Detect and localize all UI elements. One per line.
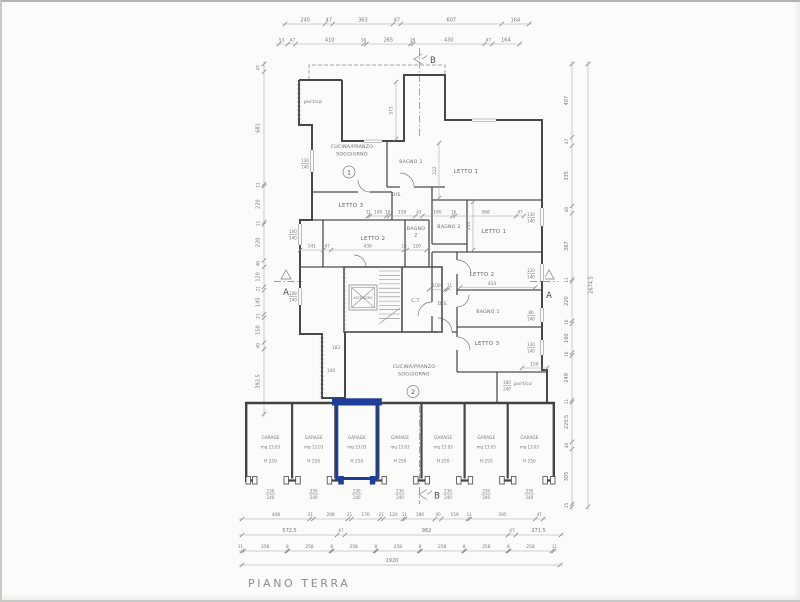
dim-label: 271.5 <box>531 528 545 534</box>
room-label-letto3-apt1: LETTO 3 <box>339 203 364 209</box>
dim-label: 40 <box>564 443 570 449</box>
dim-label: 11 <box>256 182 262 188</box>
window-dim: 130140 <box>301 158 309 170</box>
dim-label: 240 <box>267 495 275 500</box>
garage-height-label: H 250 <box>523 459 536 465</box>
dim-label: 40 <box>256 261 262 267</box>
dim-label: 130 <box>301 158 309 163</box>
dim-label: 180 <box>416 512 424 518</box>
dim-label: 8 <box>419 544 422 549</box>
garage-bay: GARAGEmq 13.03H 250 <box>304 435 324 465</box>
dim-label: 21 <box>256 313 262 319</box>
roof-overhang-dashed-line <box>309 65 445 80</box>
garage-bay: GARAGEmq 13.03H 250 <box>390 435 410 465</box>
dim-label: 140 <box>301 165 309 170</box>
room-label-letto2-apt2: LETTO 2 <box>470 272 495 278</box>
dim-label: 240 <box>396 495 404 500</box>
dim-label: 21 <box>379 512 385 517</box>
dim-label: 258 <box>394 544 402 550</box>
garage-label: GARAGE <box>262 435 280 441</box>
dim-label: 258 <box>261 544 269 550</box>
dim-column-right: 407 47 335 40 367 11 220 16 160 16 249 1… <box>564 61 574 510</box>
dim-label: 47 <box>290 38 296 44</box>
hatched-wall <box>320 334 325 398</box>
dim-label: 47 <box>486 38 492 44</box>
dim-label: 392.5 <box>256 374 262 388</box>
room-labels: portico CUCINA/PRANZO SOGGIORNO BAGNO 1 … <box>304 99 532 387</box>
garage-label: GARAGE <box>520 435 538 441</box>
room-label-letto3-apt2: LETTO 3 <box>475 341 500 347</box>
dim-label: 164 <box>501 38 511 44</box>
room-label-cucina-1b: SOGGIORNO <box>336 152 368 158</box>
garage-bay: GARAGEmq 13.03H 250 <box>477 435 497 465</box>
dim-row-top-1: 240 47 363 47 607 164 <box>282 18 532 27</box>
apartment-number-label: 1 <box>347 169 351 176</box>
section-label-b: B <box>430 56 436 66</box>
dim-label: 21 <box>308 512 314 517</box>
section-marker-b-top: B <box>414 48 436 137</box>
dim-label: 220.5 <box>564 415 570 429</box>
garage-door-dim: 230240 <box>481 489 491 501</box>
section-label-a: A <box>283 288 289 298</box>
dim-row-bottom-3: 11 258 8 258 8 258 8 258 8 258 8 258 8 2… <box>238 544 558 553</box>
garage-door-dim: 230240 <box>443 489 453 501</box>
garage-bay: GARAGEmq 13.03H 250 <box>434 435 454 465</box>
dim-label: 40 <box>564 207 570 213</box>
dim-label: 141 <box>308 243 316 249</box>
dim-label: 430 <box>444 38 454 44</box>
elevator-icon: ASCENSORE <box>349 285 377 310</box>
garage-door-dim: 230240 <box>266 489 276 501</box>
interior-walls <box>300 141 547 402</box>
apartment-number-2: 2 <box>407 386 419 398</box>
garage-height-label: H 250 <box>307 459 320 465</box>
dim-row-bottom-total: 1920 <box>239 558 563 567</box>
dim-label: 130 <box>527 342 535 347</box>
dim-label: 47 <box>517 209 523 214</box>
garage-area-label: mq 13.03 <box>477 445 497 450</box>
dim-label: 47 <box>326 18 332 24</box>
dim-label: 439 <box>364 243 372 249</box>
dim-label-total-height: 2674.5 <box>589 276 595 294</box>
room-label-portico-top: portico <box>304 99 322 105</box>
dim-label: 8 <box>507 544 510 549</box>
dim-label: 240 <box>503 387 511 392</box>
dim-label: 222 <box>432 166 438 174</box>
garage-label: GARAGE <box>434 435 452 441</box>
dim-label: 11 <box>256 221 262 227</box>
drawing-title: PIANO TERRA <box>248 577 350 590</box>
room-label-letto1-apt1: LETTO 1 <box>454 169 479 175</box>
garage-height-label: H 250 <box>437 459 450 465</box>
dim-label: 8 <box>286 544 289 549</box>
garage-door-dim: 230240 <box>352 489 362 501</box>
room-label-cucina-2a: CUCINA/PRANZO <box>393 364 435 370</box>
dim-label: 8 <box>463 544 466 549</box>
dim-label: 11 <box>447 283 453 288</box>
dim-label: 16 <box>564 351 570 357</box>
garage-area-label: mq 13.03 <box>434 445 454 450</box>
window-dim: 108140 <box>289 291 297 303</box>
highlighted-garage <box>332 398 382 484</box>
garage-area-label: mq 13.03 <box>304 445 324 450</box>
dim-label: 230 <box>396 489 404 494</box>
room-label-bagno2-right: BAGNO 2 <box>437 224 460 230</box>
room-label-cucina-2b: SOGGIORNO <box>398 372 430 378</box>
dim-label: 120 <box>413 243 421 249</box>
section-label-b: B <box>434 492 440 502</box>
dim-label: 230 <box>353 489 361 494</box>
room-label-bagno2-center-b: 2 <box>414 233 417 239</box>
dim-label: 47 <box>537 512 543 517</box>
dim-label: 140 <box>289 298 297 303</box>
dim-row-top-2: 53 47 410 16 265 16 430 47 164 <box>276 38 522 47</box>
dim-label: 240 <box>310 495 318 500</box>
garage-area-label: mq 13.03 <box>261 445 281 450</box>
window-dim: 180240 <box>503 380 511 392</box>
dim-label: 335 <box>564 171 570 181</box>
garage-label: GARAGE <box>391 435 409 441</box>
room-label-dis-apt2: DIS. <box>438 301 448 307</box>
dim-label: 47 <box>394 18 400 24</box>
dim-label: 140 <box>527 349 535 354</box>
garage-height-label: H 250 <box>350 459 363 465</box>
elevator-label: ASCENSORE <box>353 296 372 300</box>
dim-label: 11 <box>552 544 558 549</box>
scanned-sheet: 240 47 363 47 607 164 53 47 410 16 265 1… <box>0 0 800 600</box>
garage-row: GARAGEmq 13.03H 250 GARAGEmq 13.03H 250 … <box>245 398 555 500</box>
dim-label: 240 <box>353 495 361 500</box>
dim-label: 16 <box>410 38 416 44</box>
dim-label: 21 <box>347 512 353 517</box>
apartment-number-1: 1 <box>343 166 355 178</box>
dim-column-right-total: 2674.5 <box>586 61 595 510</box>
dim-label: 130 <box>527 212 535 217</box>
apartment-number-label: 2 <box>411 389 415 396</box>
room-label-dis-apt1: DIS. <box>392 192 402 198</box>
dim-label: 120 <box>389 512 397 518</box>
dim-label: 395 <box>498 512 506 518</box>
window-dim: 130140 <box>527 212 535 224</box>
window-dim: 130140 <box>527 342 535 354</box>
dim-label: 164 <box>511 18 521 24</box>
dim-label: 47 <box>256 65 262 71</box>
dim-label: 16 <box>385 209 391 214</box>
dim-label: 249 <box>564 373 570 383</box>
dim-label: 160 <box>564 333 570 343</box>
garage-label: GARAGE <box>348 435 366 441</box>
dim-label-total-width: 1920 <box>386 558 399 564</box>
dim-label: 258 <box>526 544 534 550</box>
room-label-portico-bottom: portico <box>514 381 532 387</box>
room-label-letto1-lower: LETTO 1 <box>482 229 507 235</box>
dim-label: 607 <box>447 18 457 24</box>
window-dimensions: 130140 100140 108140 130140 120140 80140… <box>289 158 535 392</box>
garage-area-label: mq 13.03 <box>347 445 367 450</box>
dim-row-bottom-1: 408 21 208 21 170 21 120 11 180 40 159 1… <box>239 512 546 521</box>
dim-label: 108 <box>289 291 297 296</box>
dim-label: 158 <box>398 209 406 215</box>
dim-label: 140 <box>327 368 335 374</box>
room-label-letto2-apt1: LETTO 2 <box>361 236 386 242</box>
dim-label: 258 <box>350 544 358 550</box>
garage-door-dim: 230240 <box>309 489 319 501</box>
dim-label: 40 <box>256 343 262 349</box>
dim-label: 53 <box>279 38 285 44</box>
dim-label: 367 <box>564 241 570 251</box>
dim-label: 11 <box>564 277 570 283</box>
dim-label: 15 <box>564 502 570 508</box>
dim-label: 408 <box>272 512 280 518</box>
window-dim: 100140 <box>289 229 297 241</box>
stair-core: ASCENSORE <box>343 267 442 332</box>
dim-label: 140 <box>289 236 297 241</box>
room-label-bagno2-center-a: BAGNO <box>407 226 425 232</box>
dim-label: 120 <box>527 268 535 273</box>
garage-label: GARAGE <box>477 435 495 441</box>
dim-label: 140 <box>527 219 535 224</box>
dim-label: 11 <box>402 512 408 517</box>
room-label-bagno1-apt2: BAGNO 1 <box>476 309 499 315</box>
dim-label: 220 <box>256 238 262 248</box>
dim-label: 80 <box>528 310 534 315</box>
dim-label: 240 <box>444 495 452 500</box>
dim-label: 240 <box>482 495 490 500</box>
garage-area-label: mq 13.03 <box>520 445 540 450</box>
room-label-ct: C.T. <box>411 298 421 304</box>
dim-label: 220 <box>256 199 262 209</box>
dim-label: 373 <box>389 106 395 114</box>
dim-label: 47 <box>338 528 344 534</box>
garage-bay: GARAGEmq 13.03H 250 <box>261 435 281 465</box>
dim-label: 681 <box>256 123 262 133</box>
section-label-a: A <box>546 291 552 301</box>
dim-row-bottom-2: 572.5 47 982 47 271.5 <box>239 528 564 537</box>
dim-label: 16 <box>564 319 570 325</box>
dim-label: 265 <box>384 38 394 44</box>
hatched-wall <box>343 267 347 332</box>
dim-label: 159 <box>450 512 458 518</box>
dim-label: 11 <box>238 544 244 549</box>
dim-label: 258 <box>438 544 446 550</box>
dim-label: 305 <box>564 472 570 482</box>
dim-label: 410 <box>325 38 335 44</box>
dim-label: 454 <box>488 281 496 287</box>
dim-label: 100 <box>432 283 440 289</box>
dim-label: 16 <box>361 38 367 44</box>
dim-label: 21 <box>256 286 262 292</box>
dim-label: 230 <box>444 489 452 494</box>
garage-height-label: H 250 <box>480 459 493 465</box>
garage-bay-highlighted: GARAGEmq 13.03H 250 <box>347 435 367 465</box>
dim-label: 47 <box>325 243 331 248</box>
dim-label: 100 <box>289 229 297 234</box>
dim-label: 240 <box>300 18 310 24</box>
stairs-icon <box>379 271 400 324</box>
window-dim: 80140 <box>527 310 535 322</box>
dim-label: 183 <box>332 345 340 351</box>
dim-label: 47 <box>509 528 515 534</box>
dim-label: 40 <box>436 512 442 517</box>
exterior-walls <box>297 75 547 402</box>
dim-label: 982 <box>422 528 432 534</box>
dim-label: 100 <box>374 209 382 215</box>
dim-label: 230 <box>526 489 534 494</box>
garage-bay: GARAGEmq 13.03H 250 <box>520 435 540 465</box>
dim-label: 220 <box>564 296 570 306</box>
dim-label: 230 <box>482 489 490 494</box>
dim-label: 208 <box>326 512 334 518</box>
dim-label: 16 <box>401 243 407 248</box>
dim-label: 240 <box>526 495 534 500</box>
dim-label: 47 <box>564 139 570 145</box>
garage-height-label: H 250 <box>394 459 407 465</box>
dim-label: 140 <box>527 317 535 322</box>
dim-label: 230 <box>267 489 275 494</box>
dim-label: 572.5 <box>282 528 296 534</box>
dim-label: 363 <box>358 18 368 24</box>
windows <box>297 117 545 355</box>
dim-label: 8 <box>330 544 333 549</box>
dim-label: 150 <box>256 325 262 335</box>
dim-label: 8 <box>375 544 378 549</box>
floorplan-drawing: 240 47 363 47 607 164 53 47 410 16 265 1… <box>2 2 800 602</box>
dim-label: 368 <box>481 209 489 215</box>
dim-label: 170 <box>361 512 369 518</box>
garage-door-dim: 230240 <box>395 489 405 501</box>
dim-label: 11 <box>564 399 570 405</box>
window-dim: 120140 <box>527 268 535 280</box>
garage-area-label: mq 13.03 <box>390 445 410 450</box>
garage-label: GARAGE <box>305 435 323 441</box>
dim-label: 180 <box>503 380 511 385</box>
room-label-bagno1-apt1: BAGNO 1 <box>399 159 422 165</box>
dim-label: 120 <box>256 272 262 282</box>
dim-label: 140 <box>527 275 535 280</box>
garage-height-label: H 250 <box>264 459 277 465</box>
dim-label: 150 <box>530 361 538 367</box>
dim-label: 43 <box>416 209 422 214</box>
dim-label: 407 <box>564 96 570 106</box>
garage-door-dim: 230240 <box>524 489 534 501</box>
dim-label: 145 <box>256 297 262 307</box>
dim-column-left: 47 681 11 220 11 220 40 120 21 145 21 15… <box>256 61 267 417</box>
room-label-cucina-1a: CUCINA/PRANZO <box>331 144 373 150</box>
dim-label: 11 <box>366 209 372 214</box>
dim-label: 258 <box>482 544 490 550</box>
dim-label: 180 <box>433 209 441 215</box>
dim-label: 258 <box>305 544 313 550</box>
dim-label: 254 <box>466 222 472 230</box>
dim-label: 230 <box>310 489 318 494</box>
dim-label: 11 <box>467 512 473 517</box>
dim-label: 16 <box>451 209 457 214</box>
hatched-wall <box>297 80 302 125</box>
